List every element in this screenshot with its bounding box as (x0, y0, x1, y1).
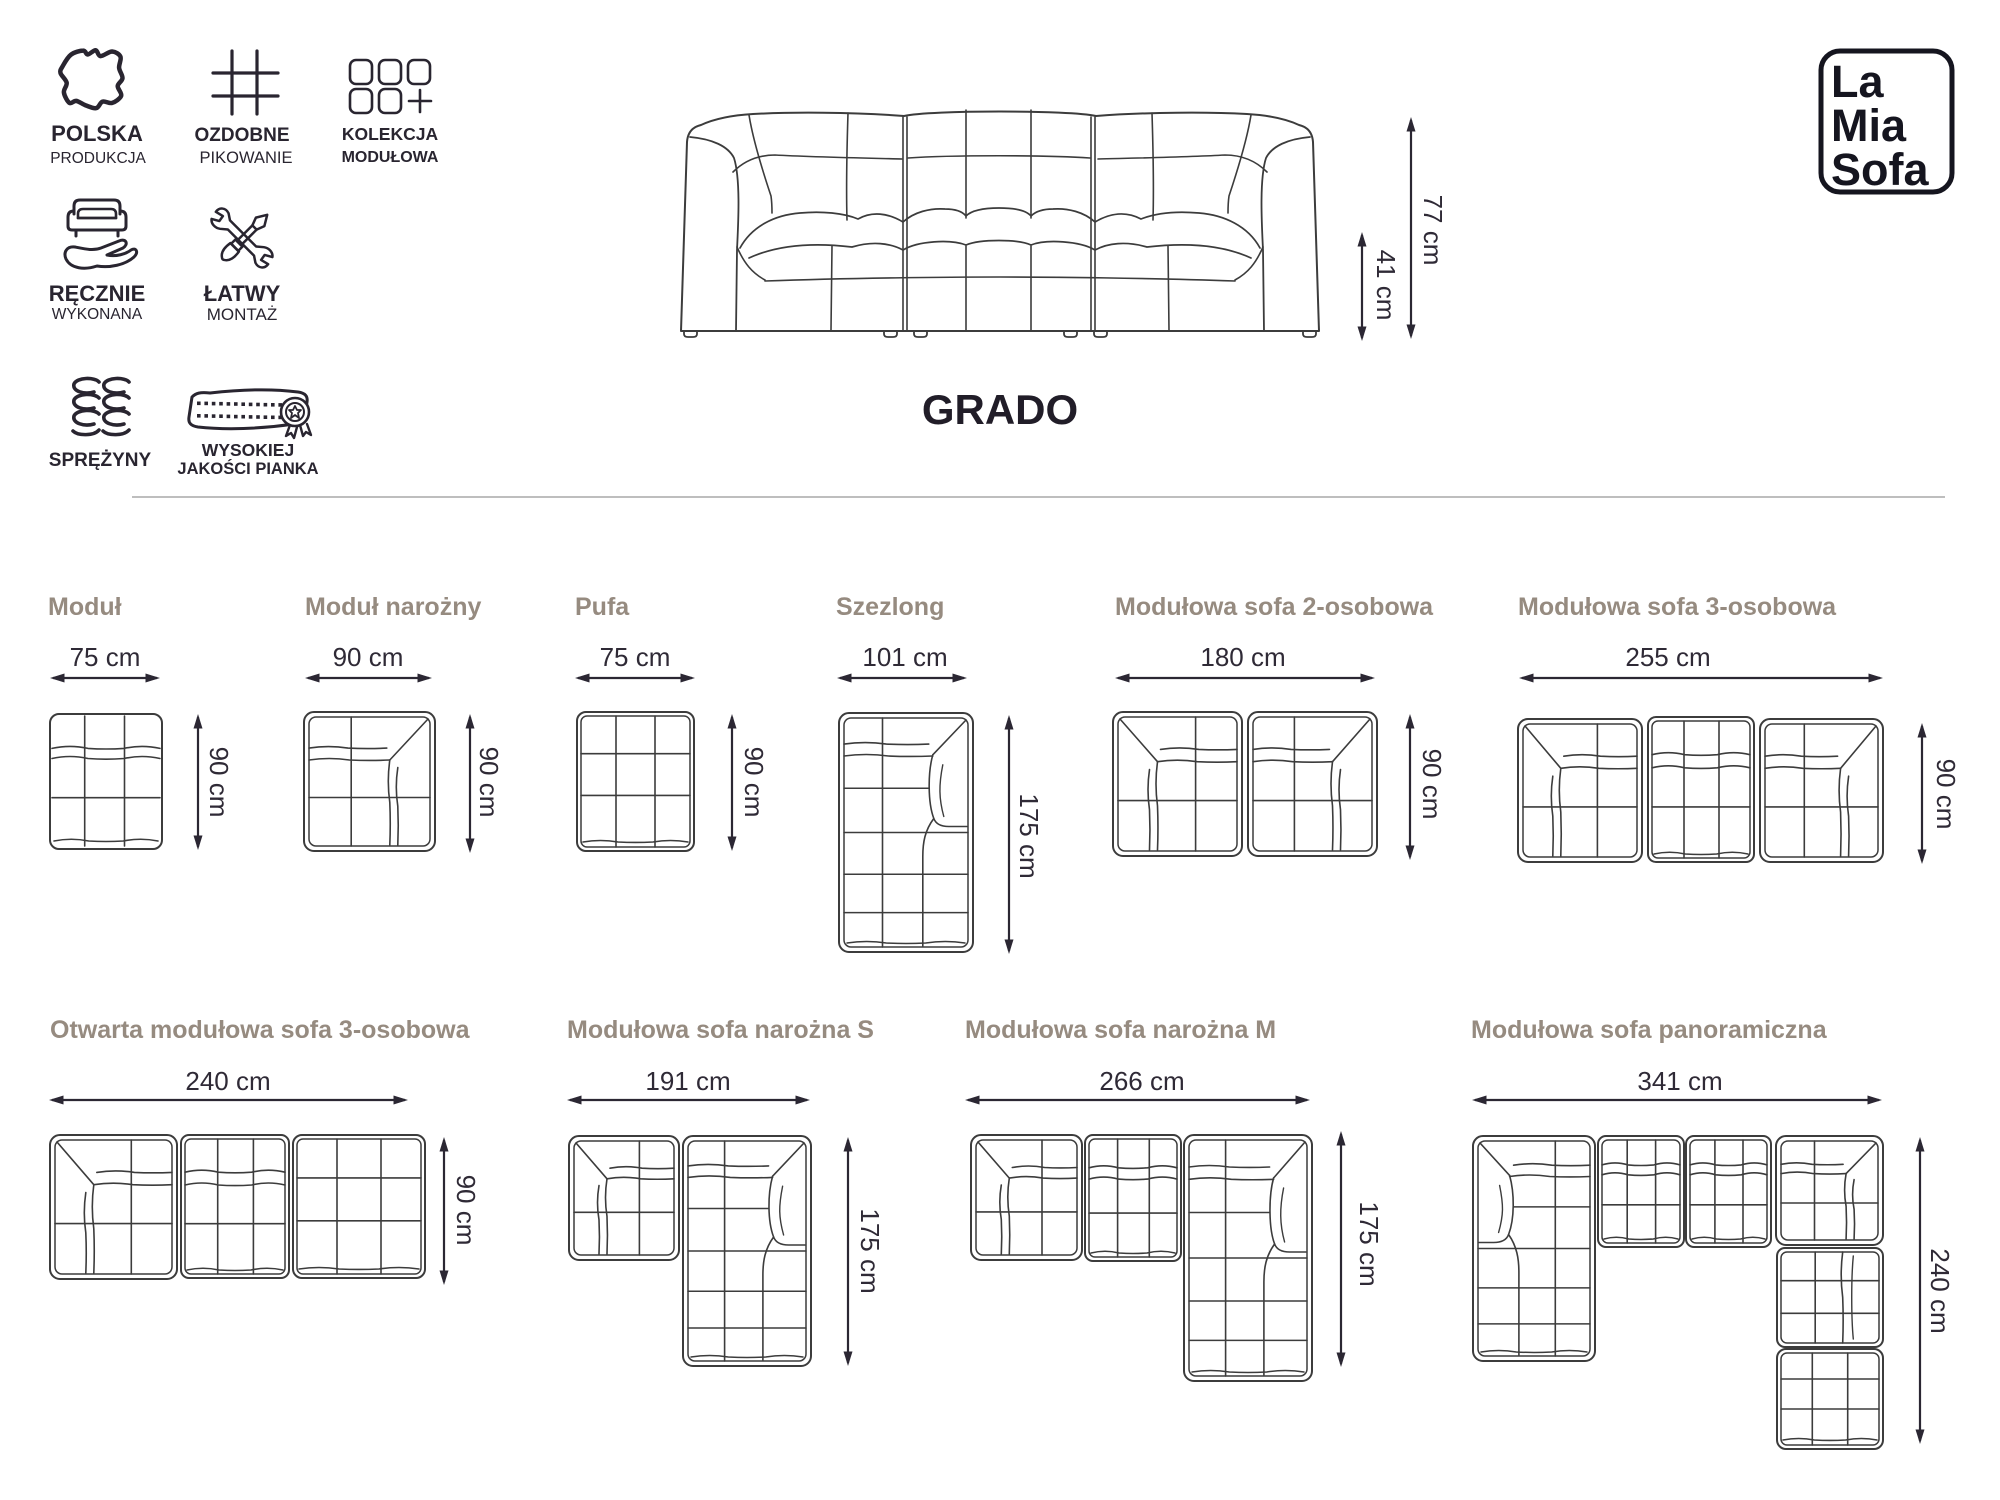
svg-text:90 cm: 90 cm (739, 747, 769, 818)
svg-text:SPRĘŻYNY: SPRĘŻYNY (49, 450, 152, 471)
svg-text:255 cm: 255 cm (1625, 642, 1710, 672)
svg-text:175 cm: 175 cm (855, 1208, 885, 1293)
svg-text:266 cm: 266 cm (1099, 1066, 1184, 1096)
svg-text:Sofa: Sofa (1831, 144, 1929, 195)
svg-text:Modułowa sofa narożna S: Modułowa sofa narożna S (567, 1016, 874, 1044)
svg-text:75 cm: 75 cm (600, 642, 671, 672)
svg-text:180 cm: 180 cm (1200, 642, 1285, 672)
svg-text:90 cm: 90 cm (333, 642, 404, 672)
svg-text:191 cm: 191 cm (645, 1066, 730, 1096)
svg-text:90 cm: 90 cm (1931, 759, 1961, 830)
svg-text:175 cm: 175 cm (1014, 793, 1044, 878)
svg-text:Modułowa sofa 3-osobowa: Modułowa sofa 3-osobowa (1518, 593, 1837, 621)
svg-text:JAKOŚCI PIANKA: JAKOŚCI PIANKA (177, 459, 318, 478)
svg-text:75 cm: 75 cm (70, 642, 141, 672)
svg-text:341 cm: 341 cm (1637, 1066, 1722, 1096)
svg-text:PRODUKCJA: PRODUKCJA (50, 150, 146, 167)
svg-text:101 cm: 101 cm (862, 642, 947, 672)
svg-text:175 cm: 175 cm (1354, 1201, 1384, 1286)
svg-text:GRADO: GRADO (922, 386, 1078, 433)
svg-text:ŁATWY: ŁATWY (204, 281, 281, 306)
svg-text:Modułowa sofa 2-osobowa: Modułowa sofa 2-osobowa (1115, 593, 1434, 621)
svg-text:240 cm: 240 cm (1925, 1248, 1955, 1333)
svg-text:90 cm: 90 cm (474, 747, 504, 818)
svg-text:Szezlong: Szezlong (836, 593, 944, 621)
svg-text:MONTAŻ: MONTAŻ (207, 305, 278, 324)
svg-text:77 cm: 77 cm (1418, 195, 1448, 266)
svg-text:RĘCZNIE: RĘCZNIE (49, 281, 146, 306)
svg-text:PIKOWANIE: PIKOWANIE (200, 149, 293, 167)
svg-text:OZDOBNE: OZDOBNE (195, 125, 290, 146)
svg-text:Otwarta modułowa sofa 3-osobow: Otwarta modułowa sofa 3-osobowa (50, 1016, 471, 1044)
svg-text:90 cm: 90 cm (1417, 749, 1447, 820)
svg-text:Modułowa sofa panoramiczna: Modułowa sofa panoramiczna (1471, 1016, 1828, 1044)
svg-text:Modułowa sofa narożna M: Modułowa sofa narożna M (965, 1016, 1276, 1044)
svg-text:MODUŁOWA: MODUŁOWA (342, 149, 439, 166)
svg-text:WYKONANA: WYKONANA (52, 306, 143, 323)
svg-text:90 cm: 90 cm (204, 747, 234, 818)
svg-text:Moduł: Moduł (48, 593, 122, 621)
svg-text:KOLEKCJA: KOLEKCJA (342, 124, 439, 144)
svg-text:41 cm: 41 cm (1371, 250, 1401, 321)
svg-text:240 cm: 240 cm (185, 1066, 270, 1096)
svg-text:WYSOKIEJ: WYSOKIEJ (202, 440, 294, 460)
svg-text:POLSKA: POLSKA (51, 121, 143, 146)
svg-text:Pufa: Pufa (575, 593, 630, 621)
svg-text:90 cm: 90 cm (451, 1175, 481, 1246)
svg-text:Moduł narożny: Moduł narożny (305, 593, 481, 621)
